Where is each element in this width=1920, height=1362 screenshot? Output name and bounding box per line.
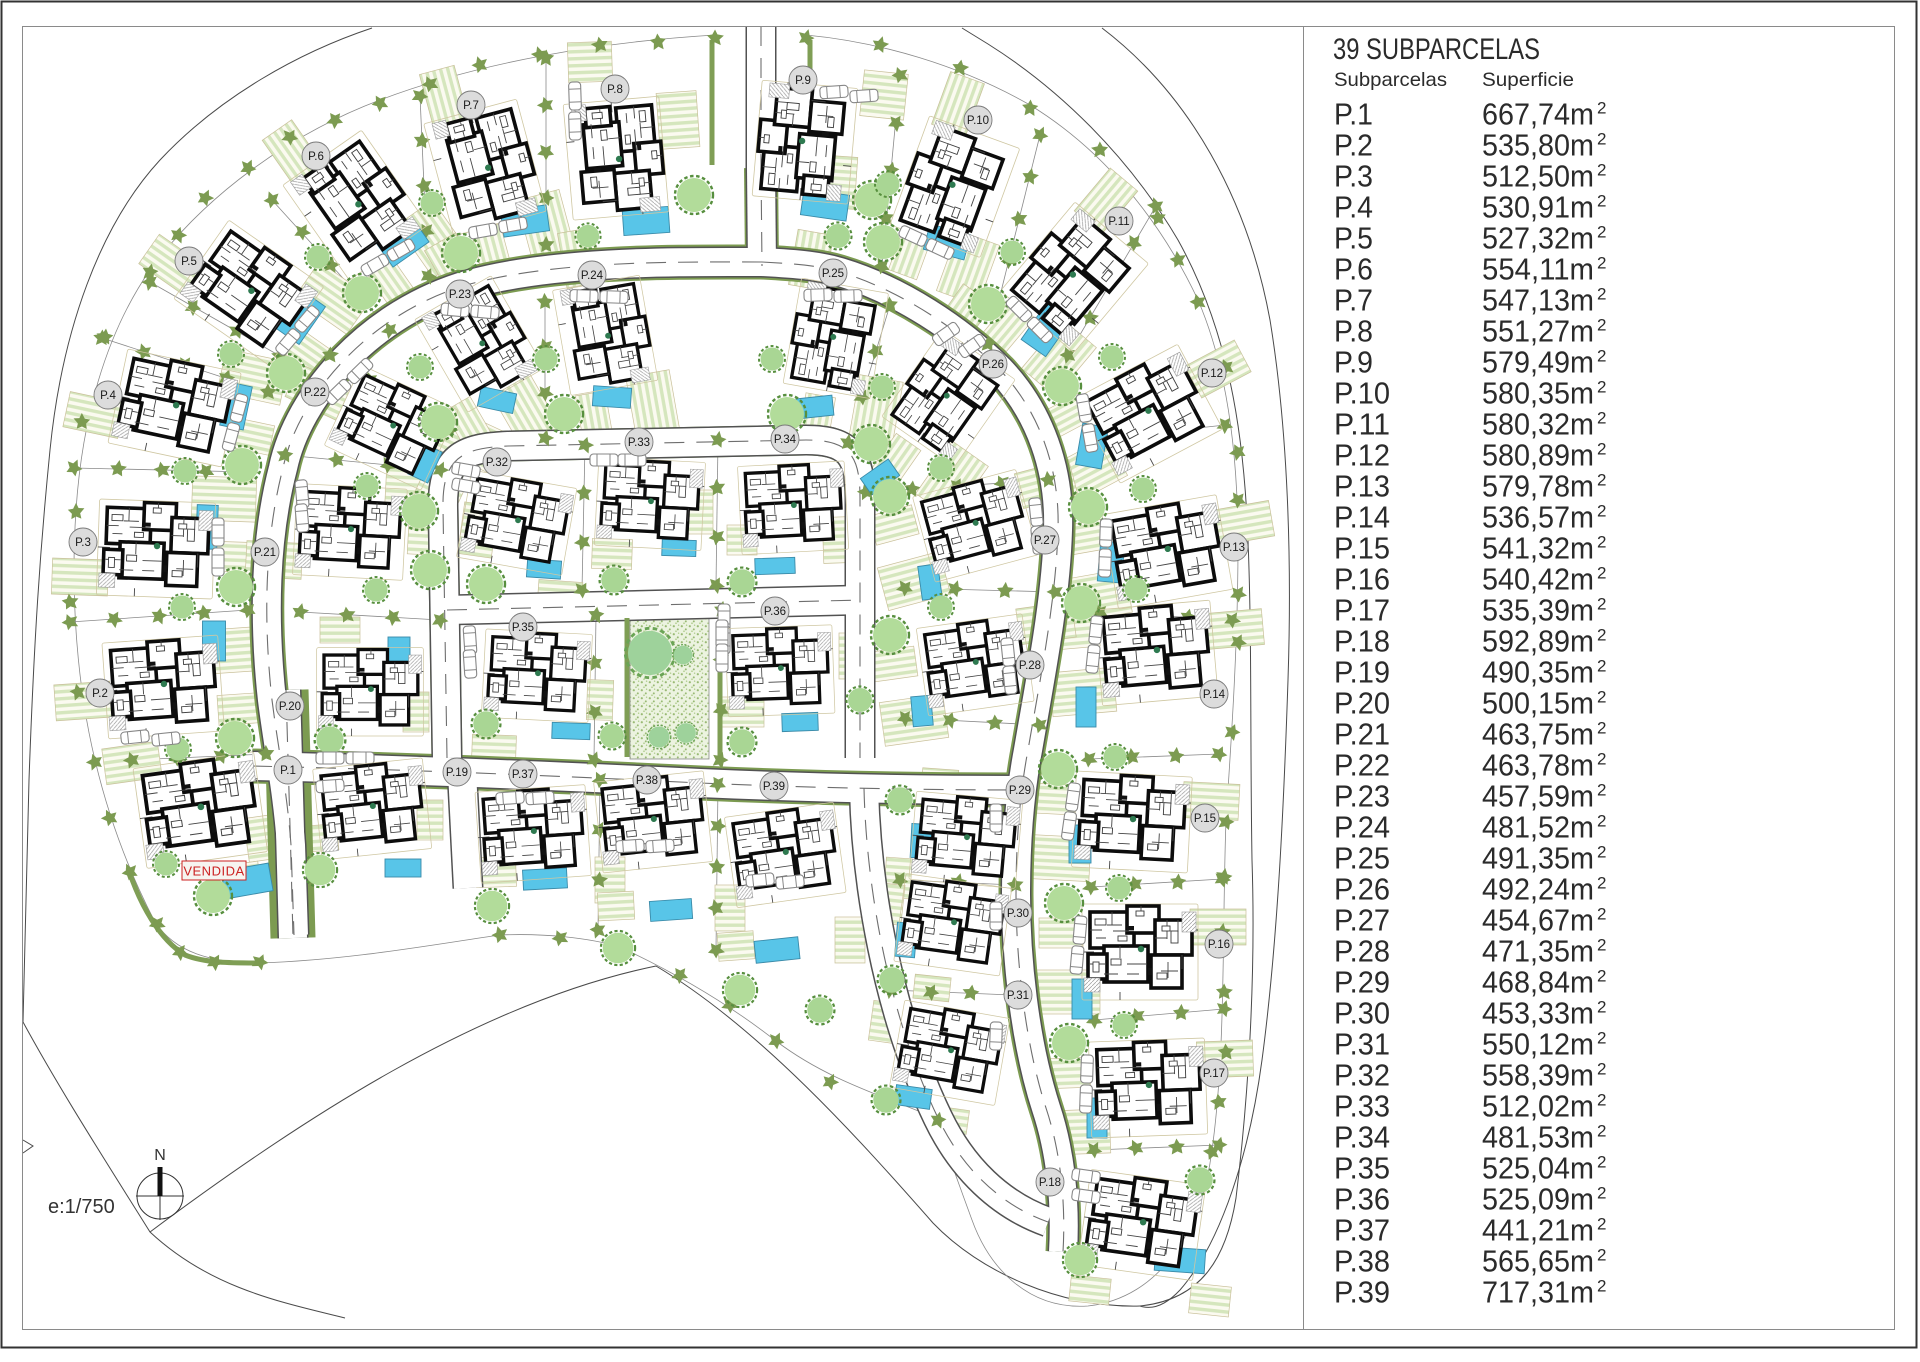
- svg-text:2: 2: [1597, 1029, 1606, 1048]
- svg-text:P.16: P.16: [1334, 562, 1390, 597]
- svg-text:579,49m: 579,49m: [1482, 345, 1594, 380]
- svg-text:P.21: P.21: [254, 547, 276, 559]
- svg-text:441,21m: 441,21m: [1482, 1213, 1594, 1248]
- svg-text:P.19: P.19: [446, 767, 468, 779]
- svg-text:2: 2: [1597, 781, 1606, 800]
- svg-text:P.2: P.2: [1334, 128, 1373, 163]
- svg-text:2: 2: [1597, 1215, 1606, 1234]
- svg-text:P.10: P.10: [1334, 376, 1390, 411]
- svg-text:525,09m: 525,09m: [1482, 1182, 1594, 1217]
- svg-text:551,27m: 551,27m: [1482, 314, 1594, 349]
- svg-text:554,11m: 554,11m: [1482, 252, 1594, 287]
- svg-text:2: 2: [1597, 750, 1606, 769]
- svg-text:512,02m: 512,02m: [1482, 1089, 1594, 1124]
- svg-text:512,50m: 512,50m: [1482, 159, 1594, 194]
- svg-text:580,32m: 580,32m: [1482, 407, 1594, 442]
- svg-text:2: 2: [1597, 1091, 1606, 1110]
- svg-text:P.35: P.35: [1334, 1151, 1390, 1186]
- svg-text:P.8: P.8: [607, 84, 623, 96]
- svg-text:2: 2: [1597, 998, 1606, 1017]
- svg-text:2: 2: [1597, 719, 1606, 738]
- svg-text:536,57m: 536,57m: [1482, 500, 1594, 535]
- svg-text:P.28: P.28: [1019, 660, 1041, 672]
- svg-text:541,32m: 541,32m: [1482, 531, 1594, 566]
- svg-text:P.12: P.12: [1201, 368, 1223, 380]
- svg-text:P.36: P.36: [764, 606, 786, 618]
- svg-text:P.5: P.5: [1334, 221, 1373, 256]
- svg-text:2: 2: [1597, 626, 1606, 645]
- svg-text:2: 2: [1597, 936, 1606, 955]
- svg-text:2: 2: [1597, 192, 1606, 211]
- svg-text:2: 2: [1597, 657, 1606, 676]
- svg-text:2: 2: [1597, 564, 1606, 583]
- svg-text:P.5: P.5: [181, 256, 197, 268]
- svg-text:e:1/750: e:1/750: [48, 1196, 115, 1218]
- svg-text:2: 2: [1597, 1184, 1606, 1203]
- svg-text:579,78m: 579,78m: [1482, 469, 1594, 504]
- svg-text:463,78m: 463,78m: [1482, 748, 1594, 783]
- svg-text:457,59m: 457,59m: [1482, 779, 1594, 814]
- svg-text:2: 2: [1597, 967, 1606, 986]
- svg-text:Subparcelas: Subparcelas: [1334, 69, 1447, 91]
- svg-text:P.20: P.20: [279, 701, 301, 713]
- svg-text:550,12m: 550,12m: [1482, 1027, 1594, 1062]
- svg-text:P.9: P.9: [1334, 345, 1373, 380]
- svg-text:2: 2: [1597, 812, 1606, 831]
- svg-text:565,65m: 565,65m: [1482, 1244, 1594, 1279]
- svg-text:P.31: P.31: [1334, 1027, 1390, 1062]
- svg-text:2: 2: [1597, 1246, 1606, 1265]
- svg-text:580,35m: 580,35m: [1482, 376, 1594, 411]
- svg-text:2: 2: [1597, 161, 1606, 180]
- svg-text:P.30: P.30: [1334, 996, 1390, 1031]
- svg-text:P.2: P.2: [92, 688, 108, 700]
- svg-text:P.7: P.7: [463, 100, 479, 112]
- svg-text:P.36: P.36: [1334, 1182, 1390, 1217]
- svg-text:2: 2: [1597, 440, 1606, 459]
- svg-text:VENDIDA: VENDIDA: [183, 864, 244, 879]
- svg-text:P.11: P.11: [1334, 407, 1390, 442]
- svg-text:P.32: P.32: [1334, 1058, 1390, 1093]
- svg-text:P.12: P.12: [1334, 438, 1390, 473]
- svg-text:P.10: P.10: [967, 115, 989, 127]
- svg-text:P.6: P.6: [1334, 252, 1373, 287]
- svg-text:P.7: P.7: [1334, 283, 1373, 318]
- svg-text:547,13m: 547,13m: [1482, 283, 1594, 318]
- svg-text:P.17: P.17: [1203, 1068, 1225, 1080]
- svg-text:P.15: P.15: [1194, 813, 1216, 825]
- svg-text:2: 2: [1597, 533, 1606, 552]
- svg-text:P.35: P.35: [512, 622, 534, 634]
- svg-text:481,53m: 481,53m: [1482, 1120, 1594, 1155]
- svg-text:527,32m: 527,32m: [1482, 221, 1594, 256]
- svg-text:2: 2: [1597, 905, 1606, 924]
- svg-text:P.27: P.27: [1034, 535, 1056, 547]
- svg-text:P.8: P.8: [1334, 314, 1373, 349]
- svg-text:P.29: P.29: [1009, 785, 1031, 797]
- svg-text:540,42m: 540,42m: [1482, 562, 1594, 597]
- svg-text:N: N: [154, 1147, 166, 1164]
- svg-text:P.4: P.4: [1334, 190, 1373, 225]
- svg-text:481,52m: 481,52m: [1482, 810, 1594, 845]
- svg-text:P.22: P.22: [304, 387, 326, 399]
- svg-text:P.21: P.21: [1334, 717, 1390, 752]
- svg-text:P.19: P.19: [1334, 655, 1390, 690]
- svg-text:2: 2: [1597, 223, 1606, 242]
- svg-text:P.37: P.37: [512, 769, 534, 781]
- svg-text:2: 2: [1597, 378, 1606, 397]
- svg-text:490,35m: 490,35m: [1482, 655, 1594, 690]
- svg-text:2: 2: [1597, 1122, 1606, 1141]
- svg-text:P.20: P.20: [1334, 686, 1390, 721]
- svg-text:2: 2: [1597, 285, 1606, 304]
- svg-text:P.34: P.34: [1334, 1120, 1390, 1155]
- svg-text:2: 2: [1597, 1153, 1606, 1172]
- svg-text:P.31: P.31: [1007, 990, 1029, 1002]
- svg-text:2: 2: [1597, 316, 1606, 335]
- svg-text:P.18: P.18: [1334, 624, 1390, 659]
- svg-text:P.38: P.38: [1334, 1244, 1390, 1279]
- svg-text:P.14: P.14: [1334, 500, 1390, 535]
- svg-text:535,39m: 535,39m: [1482, 593, 1594, 628]
- svg-text:P.24: P.24: [581, 270, 604, 282]
- svg-text:453,33m: 453,33m: [1482, 996, 1594, 1031]
- svg-text:454,67m: 454,67m: [1482, 903, 1594, 938]
- svg-text:2: 2: [1597, 99, 1606, 118]
- svg-text:P.26: P.26: [982, 359, 1004, 371]
- svg-text:468,84m: 468,84m: [1482, 965, 1594, 1000]
- svg-text:P.1: P.1: [1334, 97, 1373, 132]
- svg-text:717,31m: 717,31m: [1482, 1275, 1594, 1310]
- svg-text:667,74m: 667,74m: [1482, 97, 1594, 132]
- svg-text:P.9: P.9: [795, 75, 811, 87]
- svg-text:P.15: P.15: [1334, 531, 1390, 566]
- svg-text:P.30: P.30: [1007, 908, 1029, 920]
- svg-text:2: 2: [1597, 409, 1606, 428]
- svg-text:Superficie: Superficie: [1482, 69, 1574, 91]
- svg-text:2: 2: [1597, 1277, 1606, 1296]
- svg-text:P.39: P.39: [763, 781, 785, 793]
- svg-text:2: 2: [1597, 347, 1606, 366]
- svg-text:P.32: P.32: [486, 457, 508, 469]
- svg-text:P.38: P.38: [636, 775, 658, 787]
- svg-text:2: 2: [1597, 1060, 1606, 1079]
- svg-text:P.14: P.14: [1203, 689, 1226, 701]
- svg-text:535,80m: 535,80m: [1482, 128, 1594, 163]
- svg-text:P.11: P.11: [1108, 216, 1129, 228]
- svg-text:P.29: P.29: [1334, 965, 1390, 1000]
- svg-text:2: 2: [1597, 688, 1606, 707]
- svg-text:2: 2: [1597, 595, 1606, 614]
- svg-text:P.13: P.13: [1334, 469, 1390, 504]
- svg-text:525,04m: 525,04m: [1482, 1151, 1594, 1186]
- svg-text:592,89m: 592,89m: [1482, 624, 1594, 659]
- svg-text:P.4: P.4: [100, 390, 116, 402]
- svg-text:P.27: P.27: [1334, 903, 1390, 938]
- svg-text:2: 2: [1597, 471, 1606, 490]
- svg-text:P.3: P.3: [1334, 159, 1373, 194]
- svg-text:P.33: P.33: [1334, 1089, 1390, 1124]
- svg-text:P.34: P.34: [774, 434, 797, 446]
- svg-text:492,24m: 492,24m: [1482, 872, 1594, 907]
- svg-text:39 SUBPARCELAS: 39 SUBPARCELAS: [1333, 33, 1540, 66]
- svg-text:P.24: P.24: [1334, 810, 1390, 845]
- svg-text:P.23: P.23: [449, 289, 471, 301]
- svg-text:P.3: P.3: [75, 537, 91, 549]
- svg-text:P.23: P.23: [1334, 779, 1390, 814]
- svg-text:P.22: P.22: [1334, 748, 1390, 783]
- svg-text:P.37: P.37: [1334, 1213, 1390, 1248]
- svg-text:P.25: P.25: [1334, 841, 1390, 876]
- svg-text:P.16: P.16: [1208, 939, 1230, 951]
- svg-text:P.33: P.33: [628, 437, 650, 449]
- svg-text:500,15m: 500,15m: [1482, 686, 1594, 721]
- svg-text:491,35m: 491,35m: [1482, 841, 1594, 876]
- svg-text:471,35m: 471,35m: [1482, 934, 1594, 969]
- svg-text:P.39: P.39: [1334, 1275, 1390, 1310]
- svg-text:2: 2: [1597, 130, 1606, 149]
- svg-text:463,75m: 463,75m: [1482, 717, 1594, 752]
- svg-text:558,39m: 558,39m: [1482, 1058, 1594, 1093]
- svg-text:P.17: P.17: [1334, 593, 1390, 628]
- svg-text:2: 2: [1597, 874, 1606, 893]
- svg-text:2: 2: [1597, 254, 1606, 273]
- svg-text:2: 2: [1597, 502, 1606, 521]
- svg-text:2: 2: [1597, 843, 1606, 862]
- svg-text:P.26: P.26: [1334, 872, 1390, 907]
- svg-text:P.1: P.1: [280, 765, 296, 777]
- svg-text:P.25: P.25: [822, 268, 844, 280]
- svg-text:580,89m: 580,89m: [1482, 438, 1594, 473]
- svg-text:P.6: P.6: [308, 151, 324, 163]
- svg-text:P.13: P.13: [1223, 542, 1245, 554]
- svg-text:P.28: P.28: [1334, 934, 1390, 969]
- svg-text:530,91m: 530,91m: [1482, 190, 1594, 225]
- svg-text:P.18: P.18: [1039, 1177, 1061, 1189]
